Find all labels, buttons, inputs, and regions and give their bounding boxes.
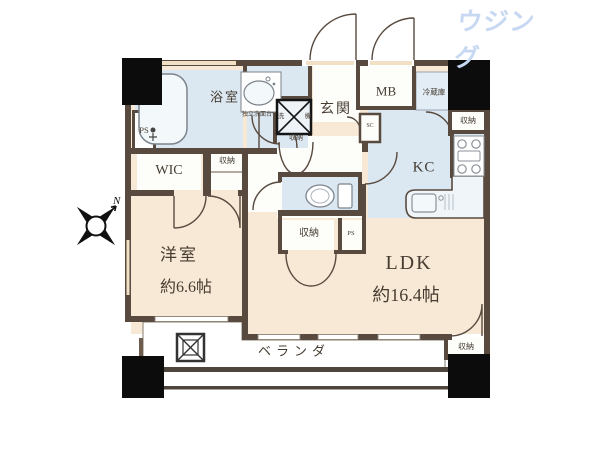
washbasin-icon	[241, 72, 281, 112]
compass-icon: N	[58, 188, 134, 264]
evacuation-hatch-icon	[177, 334, 204, 361]
floor-plan-page: N 住建ハウジング 浴室 独立洗面台 洗 機 収納 玄関 MB 冷蔵庫 SC K…	[0, 0, 600, 450]
toilet-icon	[306, 184, 352, 208]
compass-north-label: N	[112, 195, 121, 207]
company-logo: 住建ハウジング	[453, 0, 557, 74]
shoe-closet-box	[360, 114, 380, 142]
washing-machine-icon	[277, 100, 311, 134]
stove-icon	[454, 136, 484, 176]
